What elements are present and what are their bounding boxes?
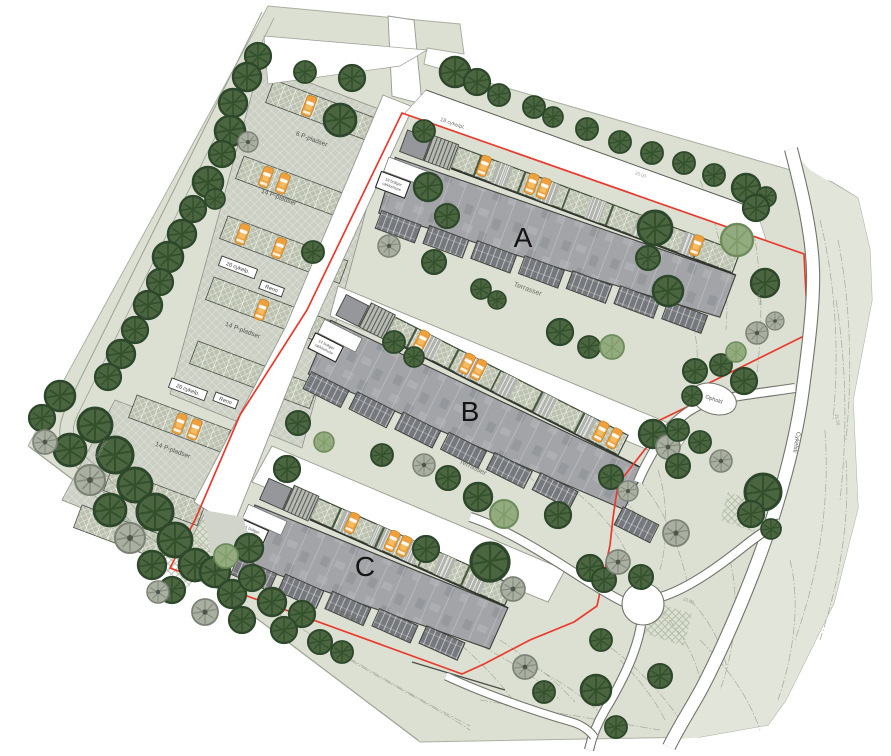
svg-text:B: B: [461, 396, 480, 427]
svg-text:C: C: [355, 551, 375, 582]
svg-text:A: A: [514, 222, 533, 253]
